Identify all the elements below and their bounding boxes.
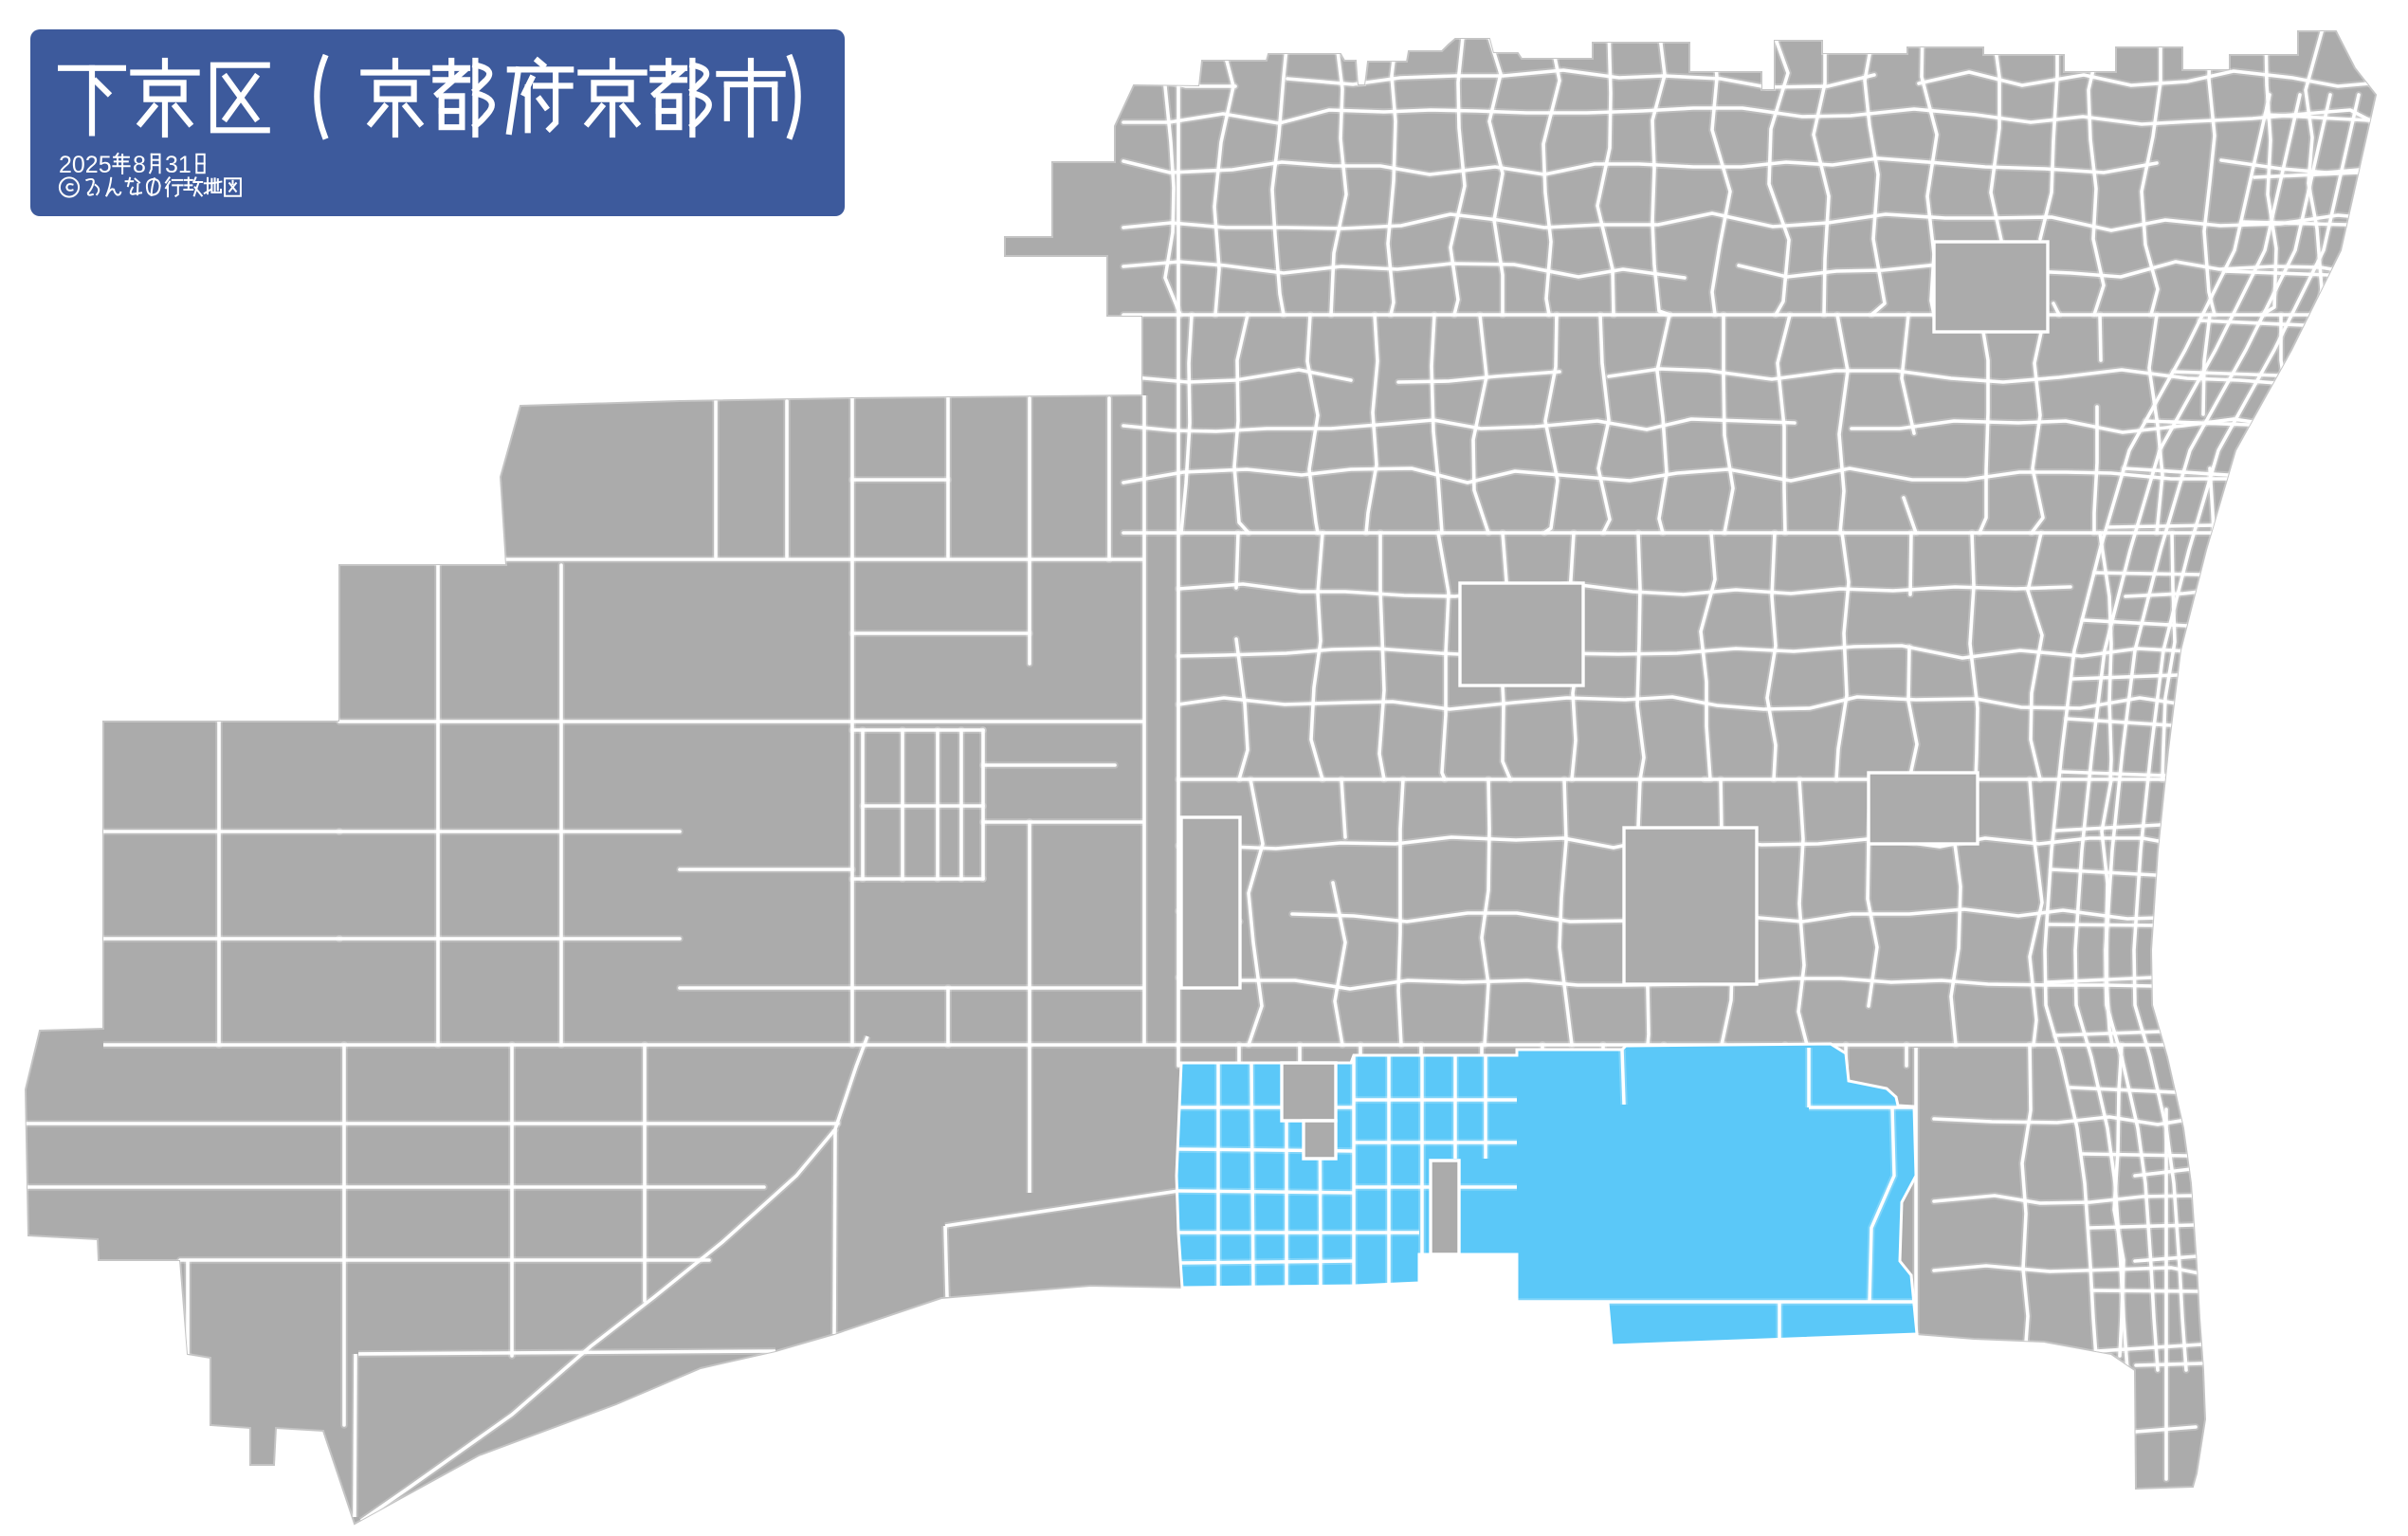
svg-text:8: 8	[133, 152, 146, 178]
svg-text:2025: 2025	[59, 152, 112, 178]
svg-text:31: 31	[165, 152, 192, 178]
